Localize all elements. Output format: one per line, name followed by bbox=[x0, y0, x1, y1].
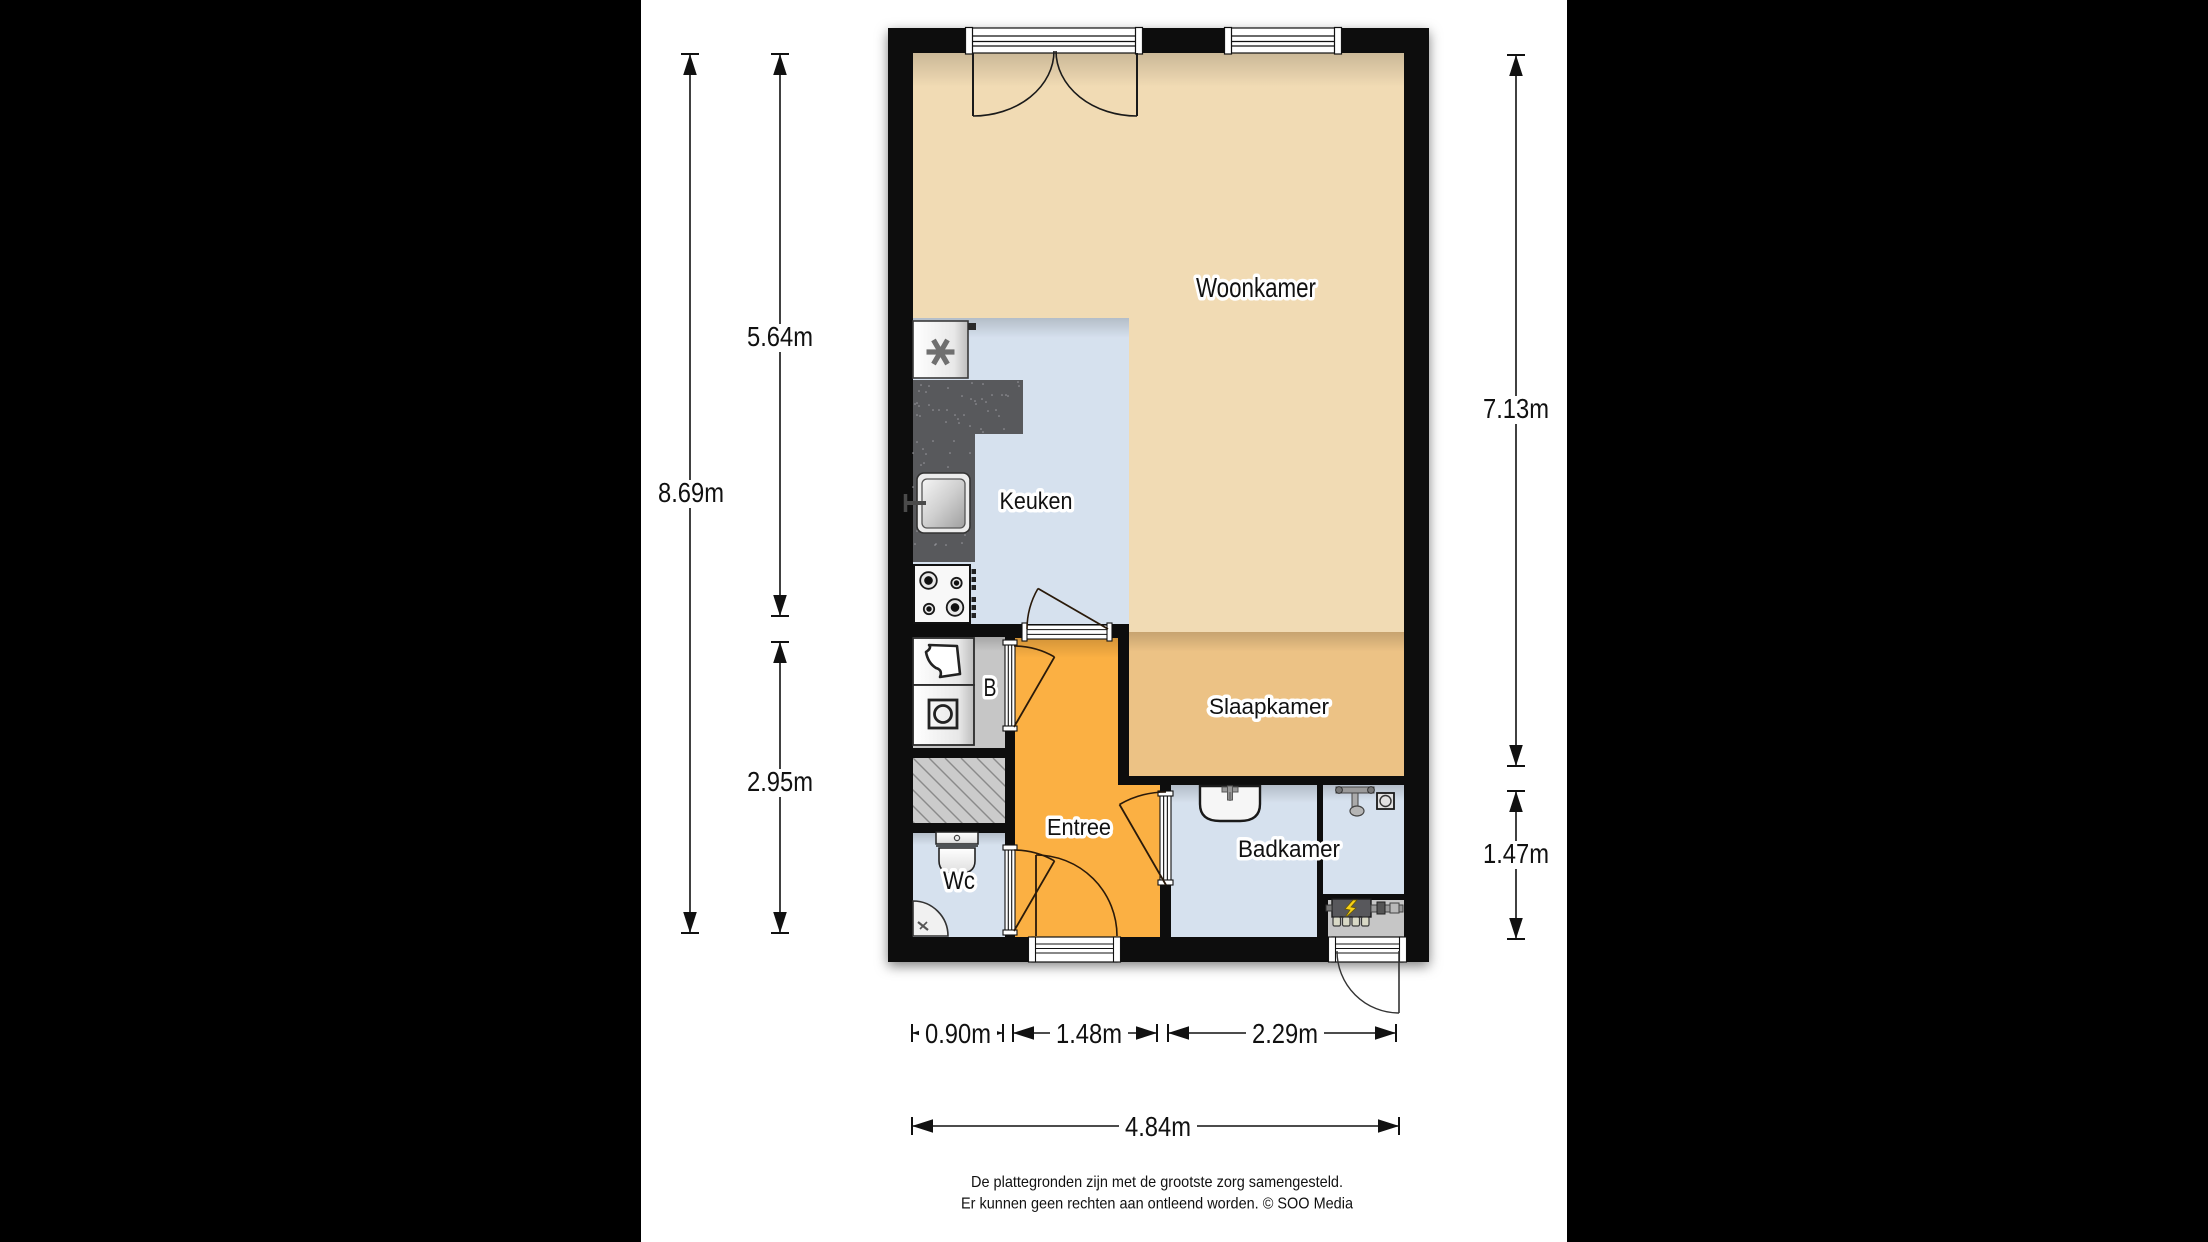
svg-text:2.29m: 2.29m bbox=[1252, 1018, 1318, 1049]
svg-text:5.64m: 5.64m bbox=[747, 321, 813, 352]
svg-text:Wc: Wc bbox=[943, 867, 975, 895]
svg-text:0.90m: 0.90m bbox=[925, 1018, 991, 1049]
svg-text:Badkamer: Badkamer bbox=[1238, 836, 1340, 863]
svg-text:7.13m: 7.13m bbox=[1483, 393, 1549, 424]
svg-text:4.84m: 4.84m bbox=[1125, 1111, 1191, 1142]
svg-text:Woonkamer: Woonkamer bbox=[1196, 272, 1316, 303]
svg-text:2.95m: 2.95m bbox=[747, 766, 813, 797]
svg-text:8.69m: 8.69m bbox=[658, 477, 724, 508]
svg-text:Entree: Entree bbox=[1047, 814, 1111, 840]
svg-text:Slaapkamer: Slaapkamer bbox=[1209, 694, 1329, 719]
svg-text:De plattegronden zijn met de g: De plattegronden zijn met de grootste zo… bbox=[971, 1174, 1343, 1191]
svg-text:Keuken: Keuken bbox=[1000, 488, 1073, 515]
svg-text:Er kunnen geen rechten aan ont: Er kunnen geen rechten aan ontleend word… bbox=[961, 1196, 1353, 1213]
svg-text:B: B bbox=[984, 674, 997, 702]
svg-text:1.48m: 1.48m bbox=[1056, 1018, 1122, 1049]
svg-text:1.47m: 1.47m bbox=[1483, 838, 1549, 869]
